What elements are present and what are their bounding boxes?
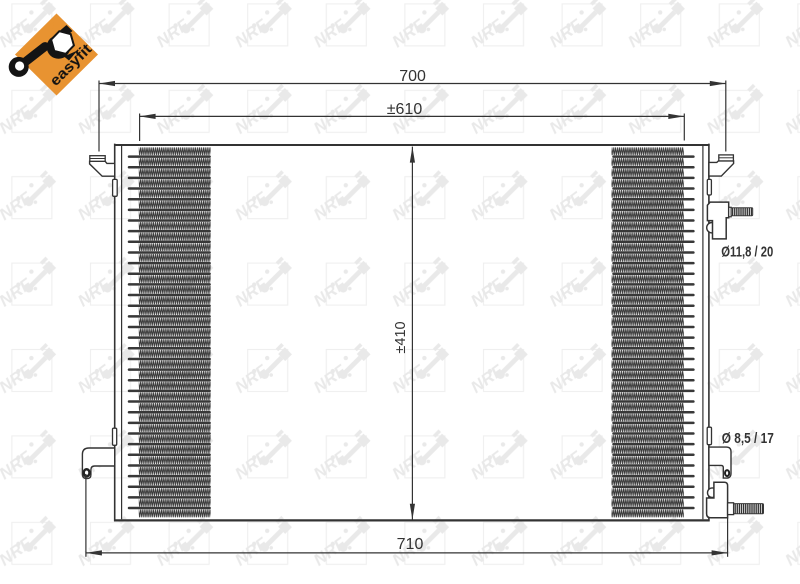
svg-text:Ø11,8 / 20: Ø11,8 / 20 [721, 245, 773, 261]
svg-text:700: 700 [399, 68, 426, 85]
svg-text:Ø 8,5 / 17: Ø 8,5 / 17 [722, 431, 774, 447]
svg-text:710: 710 [397, 536, 424, 553]
svg-text:±610: ±610 [387, 101, 423, 118]
svg-text:±410: ±410 [393, 321, 409, 353]
